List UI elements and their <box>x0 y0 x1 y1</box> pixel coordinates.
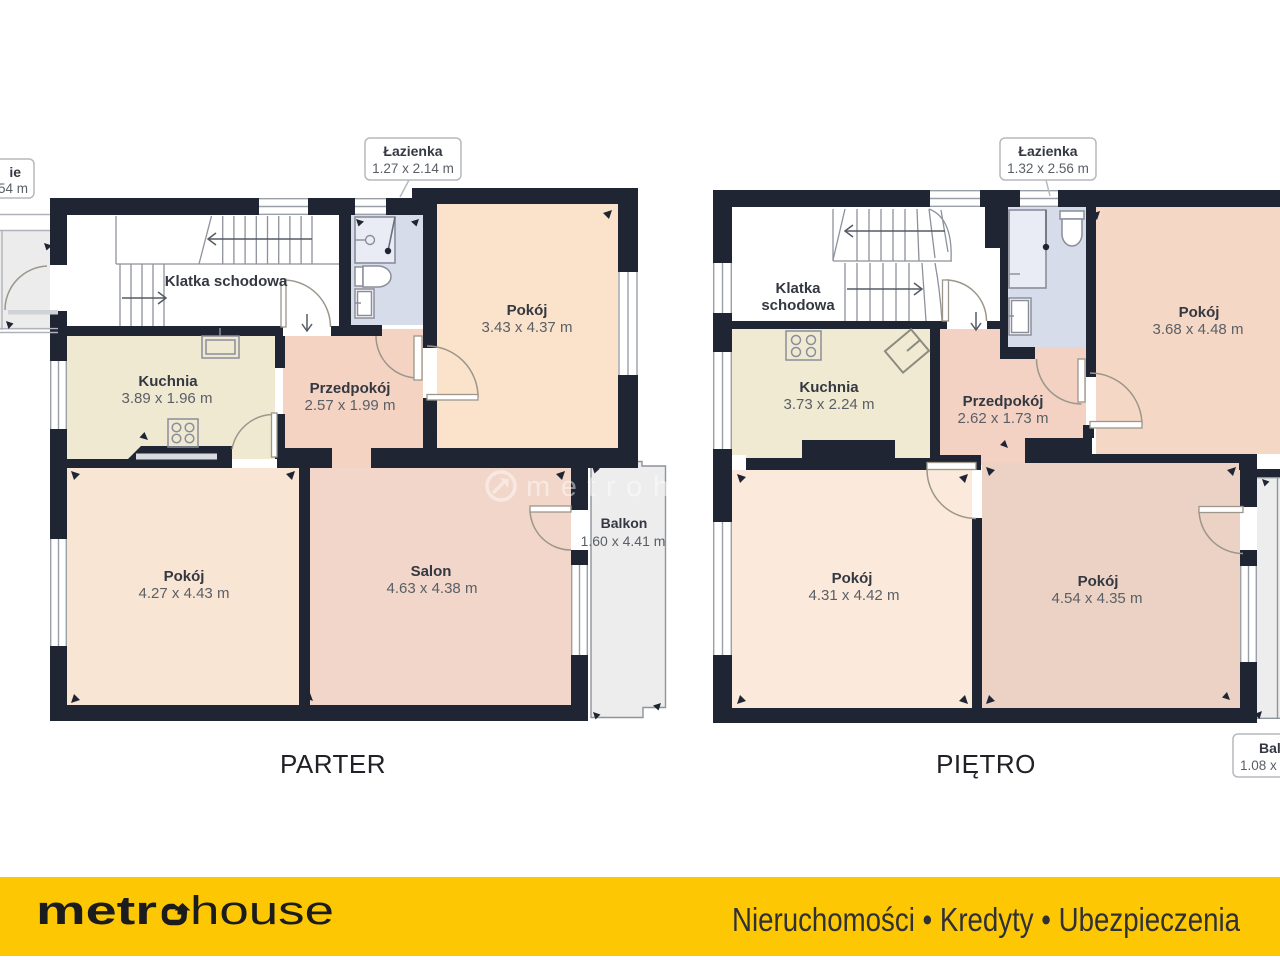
svg-text:Balkon: Balkon <box>1259 740 1280 756</box>
svg-text:Przedpokój: Przedpokój <box>963 393 1044 410</box>
svg-text:Nieruchomości • Kredyty • Ubez: Nieruchomości • Kredyty • Ubezpieczenia <box>732 901 1241 938</box>
svg-text:Kuchnia: Kuchnia <box>799 379 859 396</box>
svg-text:Pokój: Pokój <box>507 302 548 319</box>
svg-text:1.60 x 4.41 m: 1.60 x 4.41 m <box>581 533 666 549</box>
svg-text:3.43 x 4.37 m: 3.43 x 4.37 m <box>482 319 573 336</box>
svg-text:Pokój: Pokój <box>1179 304 1220 321</box>
svg-text:Kuchnia: Kuchnia <box>138 373 198 390</box>
svg-text:3.73 x 2.24 m: 3.73 x 2.24 m <box>784 396 875 413</box>
svg-text:Pokój: Pokój <box>1078 573 1119 590</box>
svg-text:PIĘTRO: PIĘTRO <box>936 749 1036 779</box>
svg-text:metr: metr <box>36 889 157 933</box>
svg-text:Łazienka: Łazienka <box>1018 143 1077 159</box>
svg-text:PARTER: PARTER <box>280 749 386 779</box>
svg-text:Pokój: Pokój <box>832 570 873 587</box>
svg-text:Łazienka: Łazienka <box>383 143 442 159</box>
svg-text:ie: ie <box>9 164 21 180</box>
svg-text:house: house <box>190 889 334 933</box>
svg-text:Przedpokój: Przedpokój <box>310 380 391 397</box>
svg-text:4.31 x 4.42 m: 4.31 x 4.42 m <box>809 587 900 604</box>
svg-text:Balkon: Balkon <box>601 515 648 531</box>
svg-text:2.62 x 1.73 m: 2.62 x 1.73 m <box>958 410 1049 427</box>
svg-text:4.54 x 4.35 m: 4.54 x 4.35 m <box>1052 590 1143 607</box>
svg-text:4.27 x 4.43 m: 4.27 x 4.43 m <box>139 585 230 602</box>
svg-text:1.27 x 2.14 m: 1.27 x 2.14 m <box>372 161 454 176</box>
svg-text:4.63 x 4.38 m: 4.63 x 4.38 m <box>387 580 478 597</box>
svg-text:Salon: Salon <box>411 563 452 580</box>
svg-text:Klatka: Klatka <box>775 280 821 297</box>
svg-text:2.57 x 1.99 m: 2.57 x 1.99 m <box>305 397 396 414</box>
svg-text:54 m: 54 m <box>0 181 28 196</box>
svg-text:3.89 x 1.96 m: 3.89 x 1.96 m <box>122 390 213 407</box>
svg-text:1.32 x 2.56 m: 1.32 x 2.56 m <box>1007 161 1089 176</box>
svg-text:Pokój: Pokój <box>164 568 205 585</box>
svg-text:Klatka schodowa: Klatka schodowa <box>165 273 288 290</box>
svg-text:schodowa: schodowa <box>761 297 835 314</box>
svg-text:3.68 x 4.48 m: 3.68 x 4.48 m <box>1153 321 1244 338</box>
svg-text:1.08 x 4.41 m: 1.08 x 4.41 m <box>1240 758 1280 773</box>
